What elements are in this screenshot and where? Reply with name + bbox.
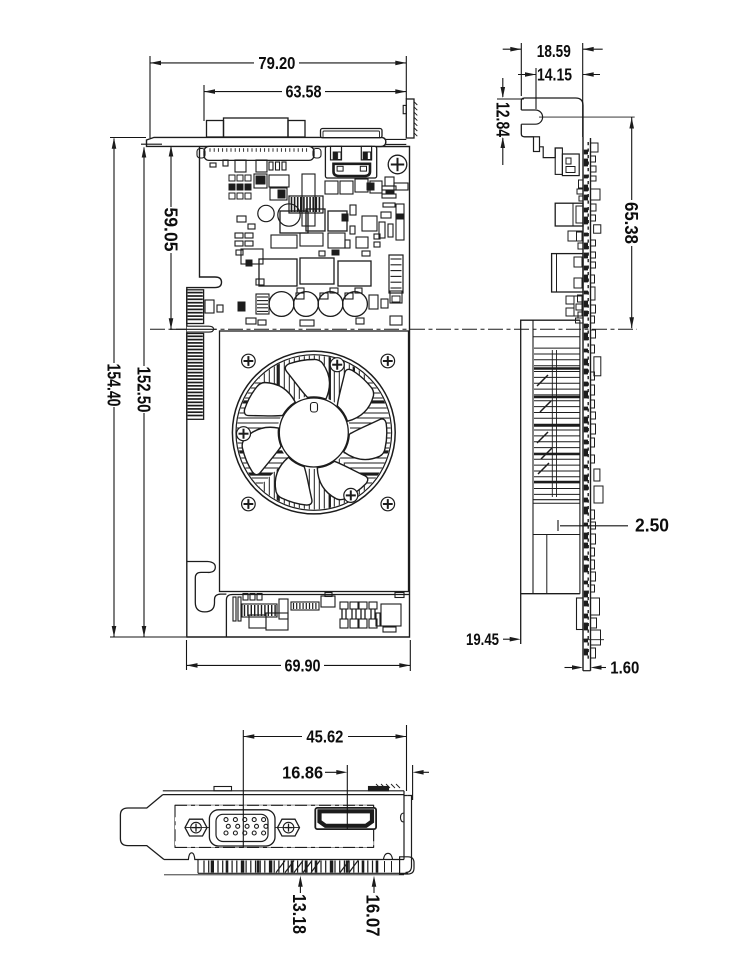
svg-text:152.50: 152.50 <box>134 367 154 413</box>
svg-text:65.38: 65.38 <box>621 202 641 244</box>
svg-text:79.20: 79.20 <box>258 53 295 73</box>
svg-text:2.50: 2.50 <box>635 515 669 535</box>
svg-text:154.40: 154.40 <box>104 364 124 407</box>
svg-text:16.86: 16.86 <box>282 762 323 782</box>
svg-text:18.59: 18.59 <box>537 41 571 61</box>
svg-text:16.07: 16.07 <box>363 895 383 937</box>
svg-text:63.58: 63.58 <box>286 82 322 102</box>
svg-text:69.90: 69.90 <box>285 656 321 676</box>
svg-text:13.18: 13.18 <box>289 894 309 934</box>
svg-text:59.05: 59.05 <box>161 208 181 252</box>
svg-text:12.84: 12.84 <box>492 102 512 137</box>
svg-text:45.62: 45.62 <box>306 727 343 747</box>
svg-text:14.15: 14.15 <box>537 64 572 84</box>
svg-text:1.60: 1.60 <box>610 658 639 678</box>
svg-text:19.45: 19.45 <box>466 631 499 649</box>
